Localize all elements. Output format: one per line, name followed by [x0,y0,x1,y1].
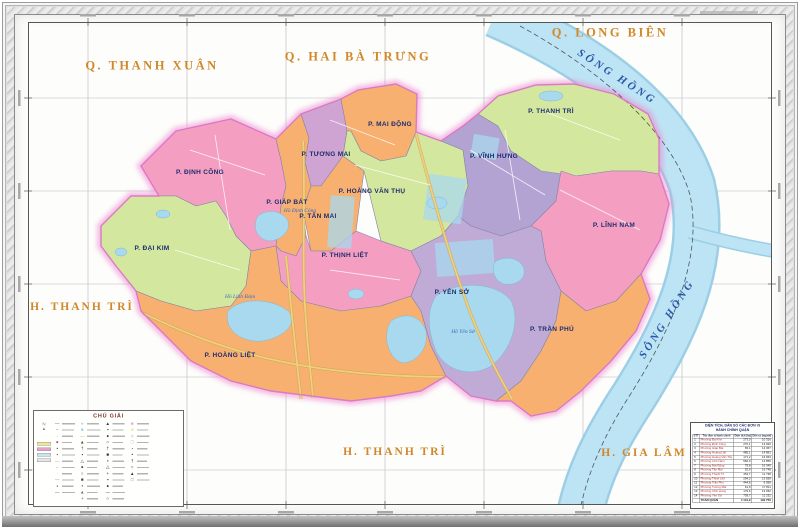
legend-symbol-icon: † [129,459,136,464]
legend-item-text [62,436,73,437]
ward-label-dai-kim: P. ĐẠI KIM [134,245,169,252]
legend-item-text [62,473,72,474]
legend-item-text [62,461,73,462]
legend-item-text [87,461,98,462]
legend-item-text [87,436,100,437]
legend-symbol-icon: — [79,434,86,439]
legend-item-text [62,492,75,493]
legend-item-text [113,436,126,437]
table-title-line2: HÀNH CHÍNH QUẬN [716,428,749,432]
legend-symbol-icon: · [54,471,61,476]
legend-symbol-icon: ● [54,440,61,445]
sheet-corner-note [700,11,758,14]
ward-label-yen-so: P. YÊN SỞ [435,287,470,296]
legend-column: ≈■—▲†▪△●○■•▲+ [79,421,101,502]
legend-column: ▲▪●○†■•△+▪●—○ [105,421,126,502]
legend-symbol-icon: ■ [129,434,136,439]
table-cell: 4 131,9 [734,499,752,503]
legend-item-text [113,448,125,449]
legend-item-text [137,473,148,474]
label-h-thanh-tri-left: H. THANH TRÌ [30,301,134,313]
legend-columns: —–·●•▪—–·—▪—≈■—▲†▪△●○■•▲+▲▪●○†■•△+▪●—○■■… [34,419,183,502]
table-cell: TOÀN QUẬN [699,499,733,503]
legend-symbol-icon: ≈ [79,421,86,426]
legend-item-text [87,479,99,480]
ward-label-mai-dong: P. MAI ĐỘNG [368,119,412,128]
label-q-thanh-xuan: Q. THANH XUÂN [85,59,218,74]
legend-item-text [137,454,149,455]
legend-item-text [87,498,98,499]
table-row: TOÀN QUẬN4 131,9192 756 [693,499,772,503]
legend-symbol-icon: ■ [105,453,112,458]
legend-symbol-icon: ● [79,465,86,470]
legend-symbol-icon: + [105,471,112,476]
ward-label-thinh-liet: P. THỊNH LIỆT [322,250,369,259]
water-label-linh-dam: Hồ Linh Đàm [224,293,255,300]
legend-column: ■■■□▪•†○▲□ [129,421,150,502]
legend-item-text [62,454,75,455]
legend-symbol-icon: ○ [129,465,136,470]
legend-item-text [87,442,99,443]
legend-item-text [87,492,98,493]
legend-symbol-icon: ● [105,434,112,439]
legend-symbol-icon: ▪ [54,453,61,458]
legend-item-text [87,486,100,487]
legend-symbol-icon: □ [129,478,136,483]
legend-symbol-icon: □ [129,440,136,445]
legend-symbol-icon: ▪ [129,446,136,451]
legend-item-text [113,498,125,499]
water-label-dinh-cong: Hồ Định Công [283,207,317,214]
table-title: DIỆN TÍCH, DÂN SỐ CÁC ĐƠN VỊ HÀNH CHÍNH … [691,423,774,433]
legend-symbol-icon: – [54,428,61,433]
legend-symbol-icon: ■ [79,428,86,433]
ward-label-giap-bat: P. GIÁP BÁT [266,197,307,206]
legend-item-text [113,442,124,443]
water-label-yen-so: Hồ Yên Sở [450,328,475,335]
legend-item-text [62,467,75,468]
swatch-gray [37,459,51,463]
legend-symbol-icon: ■ [129,428,136,433]
legend-symbol-icon: • [129,453,136,458]
legend-item-text [113,486,124,487]
legend-item-text [62,442,72,443]
legend-item-text [62,423,75,424]
legend-item-text [137,461,147,462]
legend-symbol-icon: ■ [129,421,136,426]
ward-label-linh-nam: P. LĨNH NAM [593,220,635,229]
legend-item-text [113,423,125,424]
legend-column: —–·●•▪—–·—▪— [54,421,75,502]
legend-item-text [113,454,123,455]
legend-symbol-icon: — [105,490,112,495]
legend-item-text [113,473,124,474]
legend-item-text [137,442,149,443]
map-sheet-photo: P. ĐỊNH CÔNG P. ĐẠI KIM P. GIÁP BÁT P. T… [0,0,800,529]
legend-symbol-icon: ▲ [79,490,86,495]
legend-item-text [137,429,148,430]
legend-symbol-icon: ▲ [129,471,136,476]
legend-symbol-icon: — [54,478,61,483]
label-h-gia-lam: H. GIA LÂM [601,447,687,459]
legend-item-text [137,467,149,468]
ward-label-dinh-cong: P. ĐỊNH CÔNG [176,167,224,176]
legend-symbol-icon: ▲ [105,421,112,426]
legend-item-text [113,467,126,468]
legend-item-text [137,436,150,437]
legend-symbol-icon: ■ [79,478,86,483]
legend-item-text [62,486,74,487]
ward-label-vinh-hung: P. VĨNH HƯNG [470,151,518,160]
legend-item-text [87,467,97,468]
legend-symbol-icon: · [54,434,61,439]
legend-item-text [87,454,100,455]
swatch-pink [37,448,51,452]
legend-item-text [113,479,125,480]
legend-item-text [87,423,99,424]
swatch-yellow [37,442,51,446]
legend-item-text [87,473,99,474]
label-h-thanh-tri-bottom: H. THANH TRÌ [343,446,447,458]
legend-item: □ [129,477,150,483]
legend-symbol-icon: ▪ [54,484,61,489]
legend-symbol-icon: † [79,446,86,451]
legend-item-text [137,448,148,449]
legend-item-text [113,461,125,462]
legend-symbol-icon: ▲ [79,440,86,445]
statistics-table-box: DIỆN TÍCH, DÂN SỐ CÁC ĐƠN VỊ HÀNH CHÍNH … [690,422,775,509]
legend-symbol-icon: • [105,459,112,464]
legend-symbol-icon: † [105,446,112,451]
legend-symbol-icon: — [54,421,61,426]
compass-icon: N▲ [38,422,51,431]
legend-symbol-icon: ○ [105,440,112,445]
legend-symbol-icon: – [54,465,61,470]
legend-item-text [62,448,74,449]
legend-item: ○ [105,496,126,502]
legend-symbol-icon: ● [105,484,112,489]
ward-label-thanh-tri: P. THANH TRÌ [528,106,574,115]
legend-item-text [113,429,124,430]
legend-symbol-icon: ○ [79,471,86,476]
legend-item-text [87,429,101,430]
legend-item-text [113,492,126,493]
legend-symbol-icon: + [79,496,86,501]
area-population-table: STT Tên đơn vị hành chính Diện tích (ha)… [693,434,773,503]
legend-symbol-icon: — [54,459,61,464]
table-title-line1: DIỆN TÍCH, DÂN SỐ CÁC ĐƠN VỊ [705,424,760,428]
label-q-hai-ba-trung: Q. HAI BÀ TRƯNG [285,50,432,65]
table-cell: 192 756 [752,499,772,503]
legend-item: + [79,496,101,502]
legend-title: CHÚ GIẢI [34,411,183,419]
legend-symbol-icon: ▪ [105,478,112,483]
ward-label-hoang-van-thu: P. HOÀNG VĂN THỤ [339,186,406,195]
legend-item-text [137,423,149,424]
ward-label-tuong-mai: P. TƯƠNG MAI [301,151,350,158]
legend-box: CHÚ GIẢI N▲ —–·●•▪—–·—▪—≈■—▲†▪△●○■•▲+▲▪●… [33,410,184,507]
lake-yen-so-3 [493,258,524,284]
legend-symbol-icon: ▪ [105,428,112,433]
legend-item: — [54,489,75,495]
legend-symbol-icon: ▪ [79,453,86,458]
legend-item-text [62,479,74,480]
legend-swatches [37,442,51,464]
legend-symbol-icon: • [79,484,86,489]
label-q-long-bien: Q. LONG BIÊN [552,26,668,41]
legend-item-text [62,429,74,430]
legend-item-text [137,479,150,480]
legend-symbol-icon: ○ [105,496,112,501]
ward-label-hoang-liet: P. HOÀNG LIỆT [204,350,255,359]
swatch-blue [37,453,51,457]
legend-symbol-icon: △ [79,459,86,464]
legend-symbol-icon: — [54,490,61,495]
legend-symbol-icon: • [54,446,61,451]
ward-polygons [101,84,669,416]
legend-symbol-icon: △ [105,465,112,470]
legend-item-text [87,448,98,449]
